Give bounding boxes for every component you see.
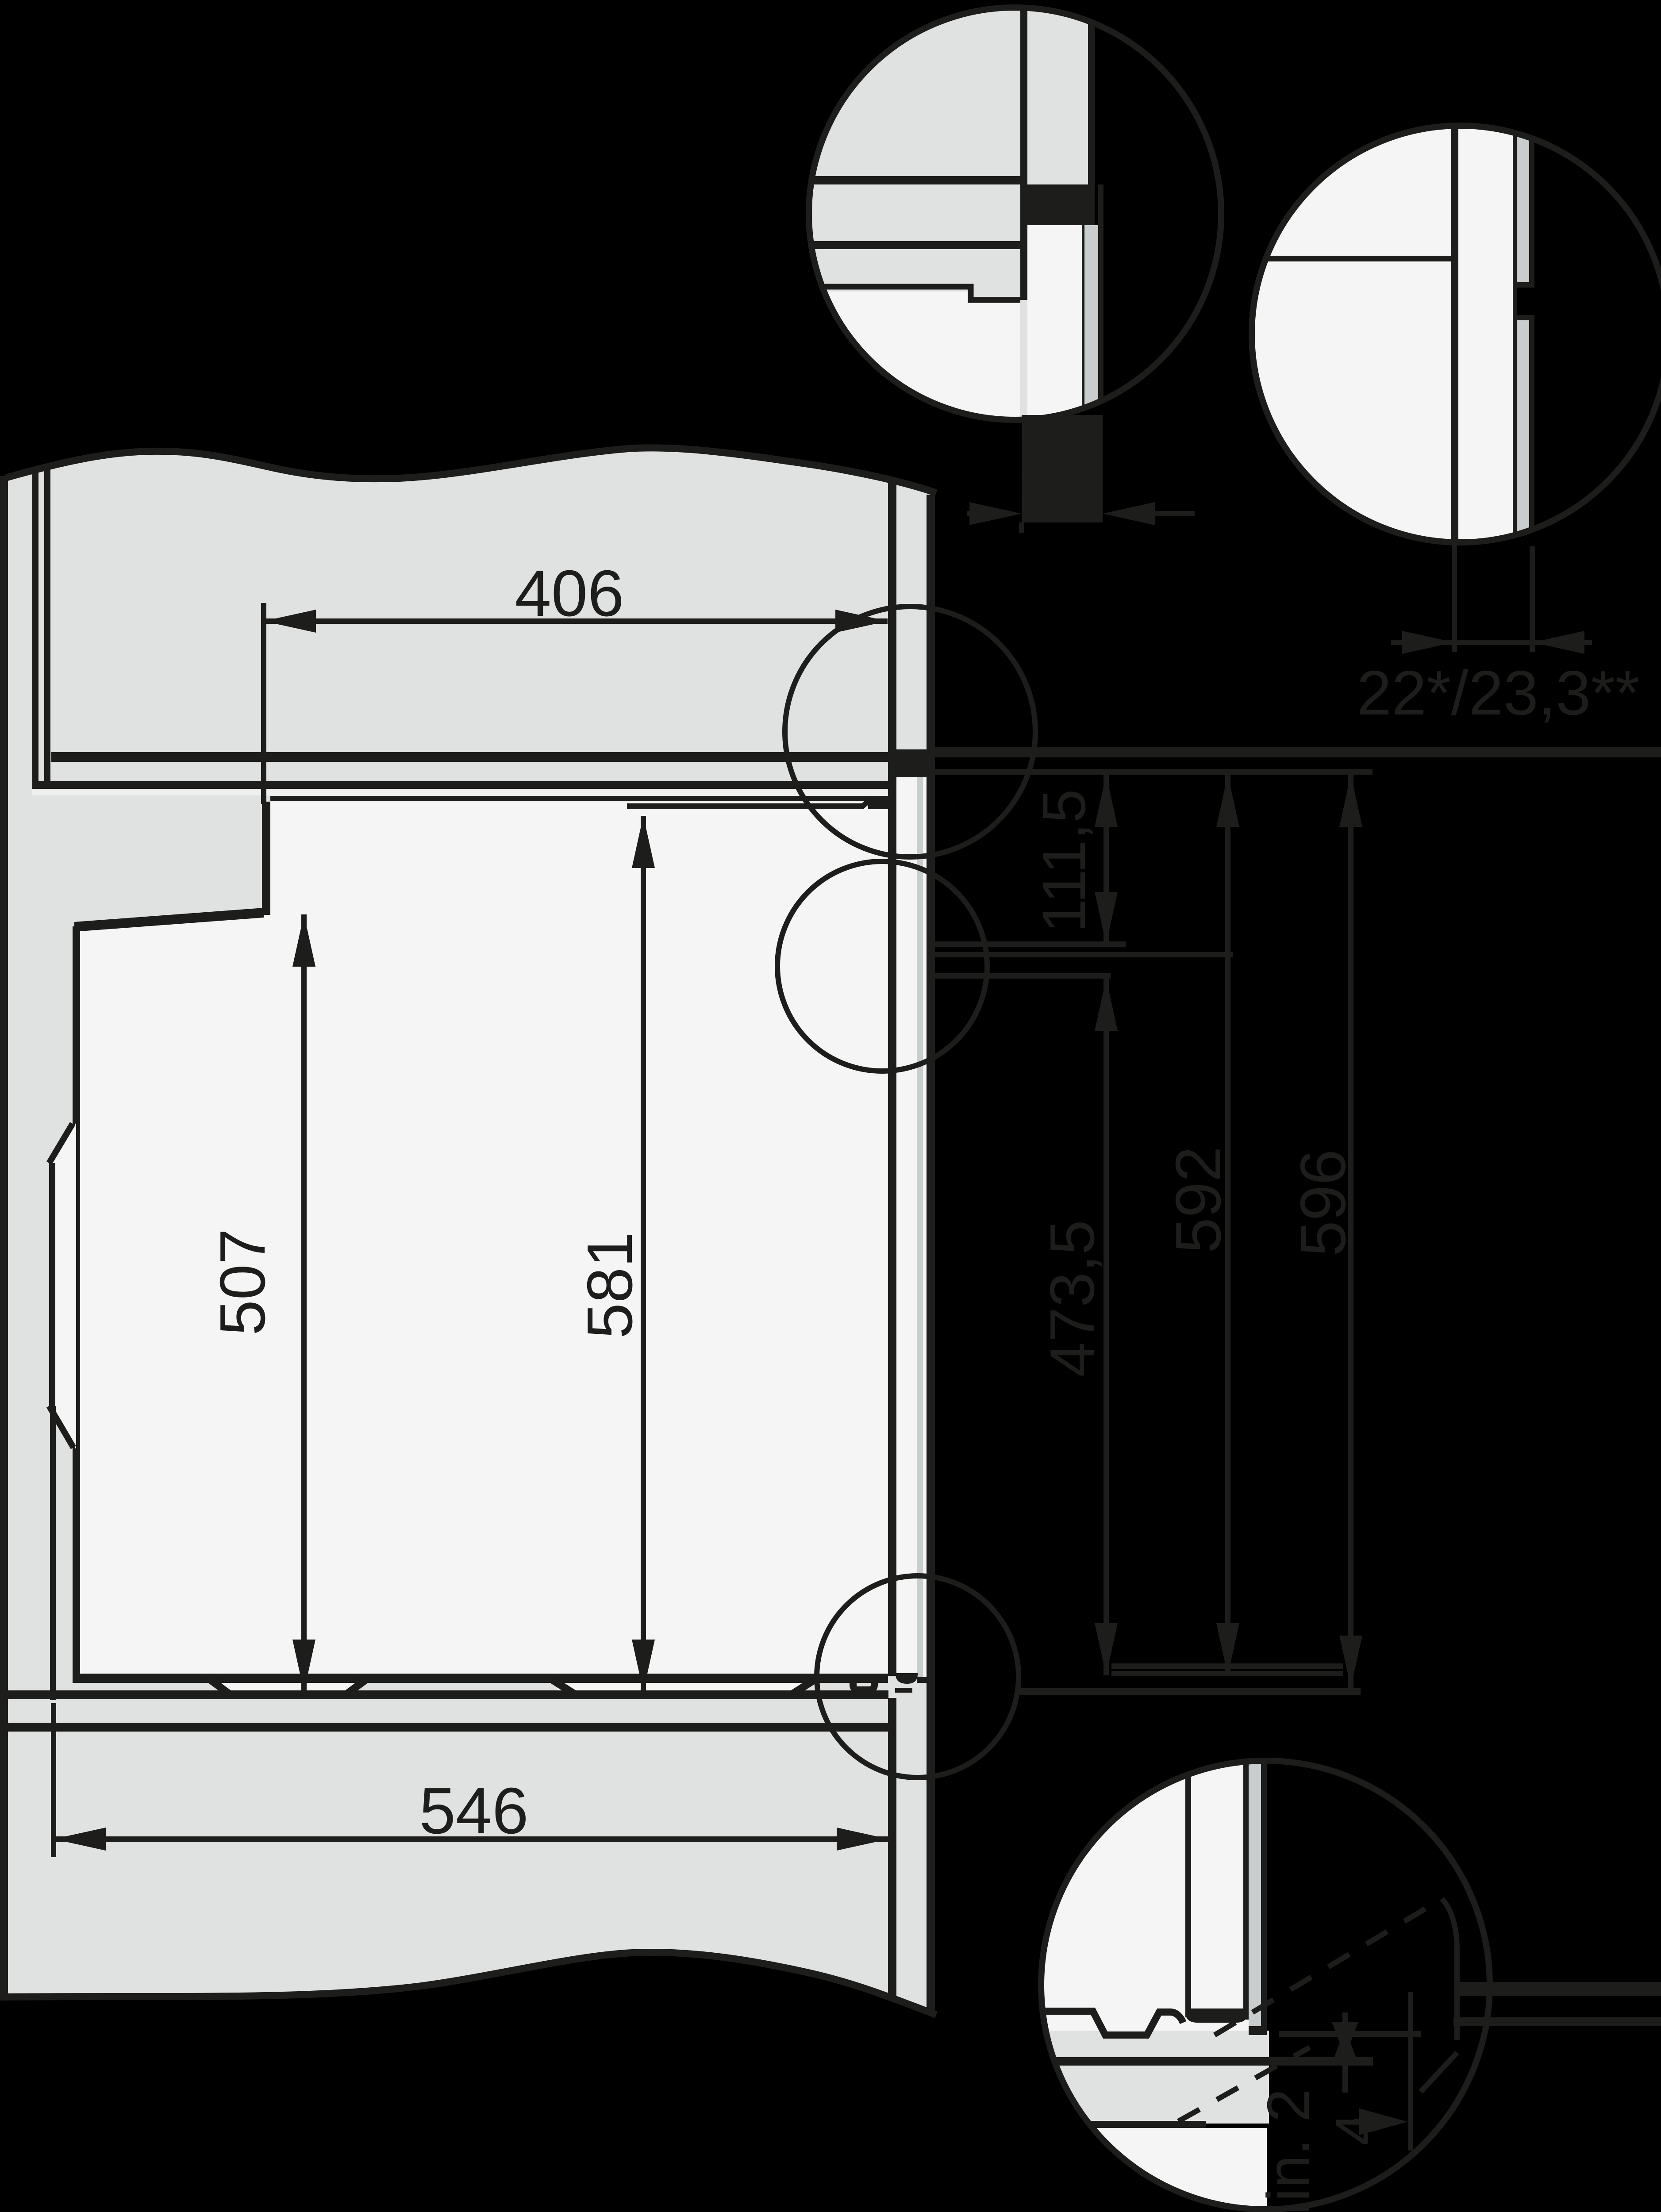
svg-text:min. 2: min. 2 — [1255, 2089, 1322, 2212]
svg-text:22*/23,3**: 22*/23,3** — [1357, 658, 1640, 728]
svg-text:596: 596 — [1287, 1149, 1359, 1256]
svg-text:15: 15 — [1010, 441, 1074, 505]
svg-text:581: 581 — [574, 1232, 646, 1339]
svg-text:406: 406 — [515, 557, 624, 630]
svg-text:546: 546 — [419, 1774, 529, 1847]
svg-text:4: 4 — [1323, 2112, 1390, 2145]
svg-text:473,5: 473,5 — [1037, 1220, 1107, 1377]
svg-text:507: 507 — [207, 1229, 278, 1336]
svg-text:111,5: 111,5 — [1030, 789, 1098, 933]
svg-text:592: 592 — [1162, 1146, 1234, 1253]
